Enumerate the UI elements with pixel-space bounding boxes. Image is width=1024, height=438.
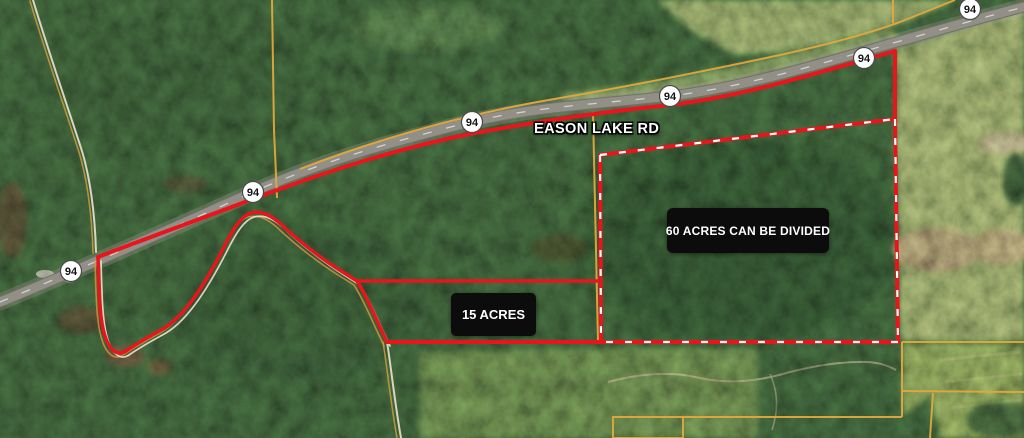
parcel-label-60-acres: 60 ACRES CAN BE DIVIDED xyxy=(667,208,829,253)
highway-94-shield: 94 xyxy=(660,86,681,107)
satellite-map-canvas: 94 94 94 94 94 94 xyxy=(0,0,1024,438)
shield-route-label: 94 xyxy=(65,266,78,278)
shield-route-label: 94 xyxy=(858,53,871,65)
parcel-label-15-acres: 15 ACRES xyxy=(451,293,536,336)
shield-route-label: 94 xyxy=(664,91,677,103)
satellite-map-viewport: 94 94 94 94 94 94 EASON xyxy=(0,0,1024,438)
highway-94-shield: 94 xyxy=(960,0,981,20)
highway-94-shield: 94 xyxy=(243,182,264,203)
shield-route-label: 94 xyxy=(466,117,479,129)
shield-route-label: 94 xyxy=(964,4,977,16)
shield-route-label: 94 xyxy=(247,187,260,199)
road-name-label: EASON LAKE RD xyxy=(534,121,659,137)
highway-94-shield: 94 xyxy=(61,261,82,282)
parcel-line-southeast-horizontal xyxy=(902,391,1024,392)
highway-94-shield: 94 xyxy=(854,48,875,69)
highway-94-shield: 94 xyxy=(462,112,483,133)
